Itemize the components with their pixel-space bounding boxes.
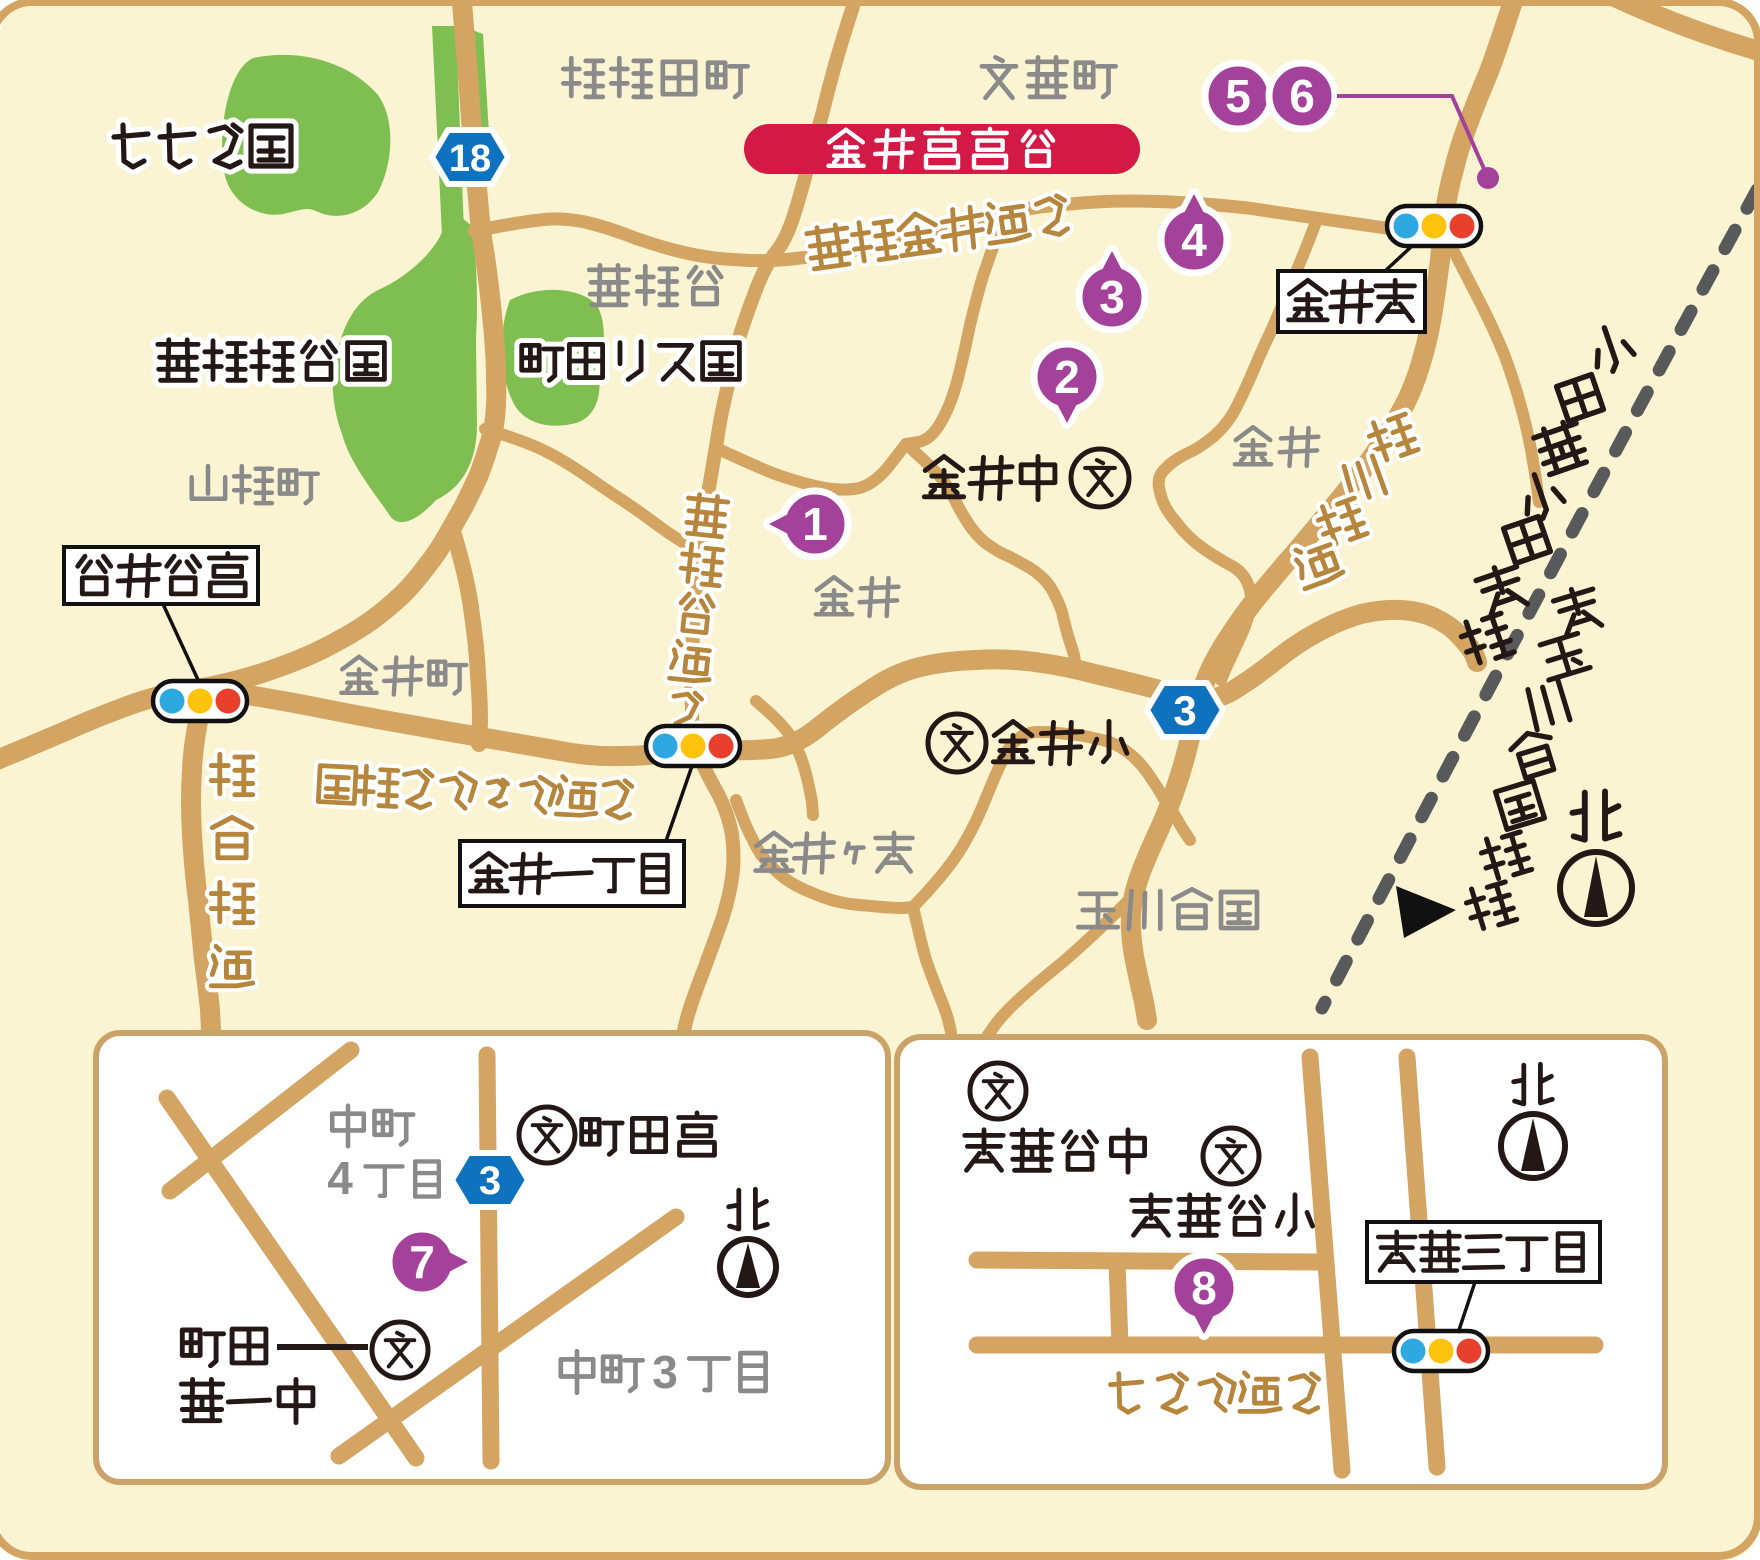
svg-text:7: 7: [409, 1236, 435, 1288]
svg-text:8: 8: [1191, 1262, 1217, 1314]
svg-text:1: 1: [802, 498, 828, 550]
svg-text:5: 5: [1225, 70, 1251, 122]
svg-text:4: 4: [327, 1152, 353, 1204]
svg-text:2: 2: [1054, 351, 1080, 403]
svg-text:3: 3: [479, 1159, 501, 1203]
svg-text:3: 3: [652, 1346, 678, 1398]
svg-text:4: 4: [1181, 214, 1207, 266]
svg-text:3: 3: [1099, 271, 1125, 323]
svg-text:6: 6: [1289, 70, 1315, 122]
svg-text:3: 3: [1173, 687, 1196, 734]
svg-text:18: 18: [449, 138, 491, 180]
